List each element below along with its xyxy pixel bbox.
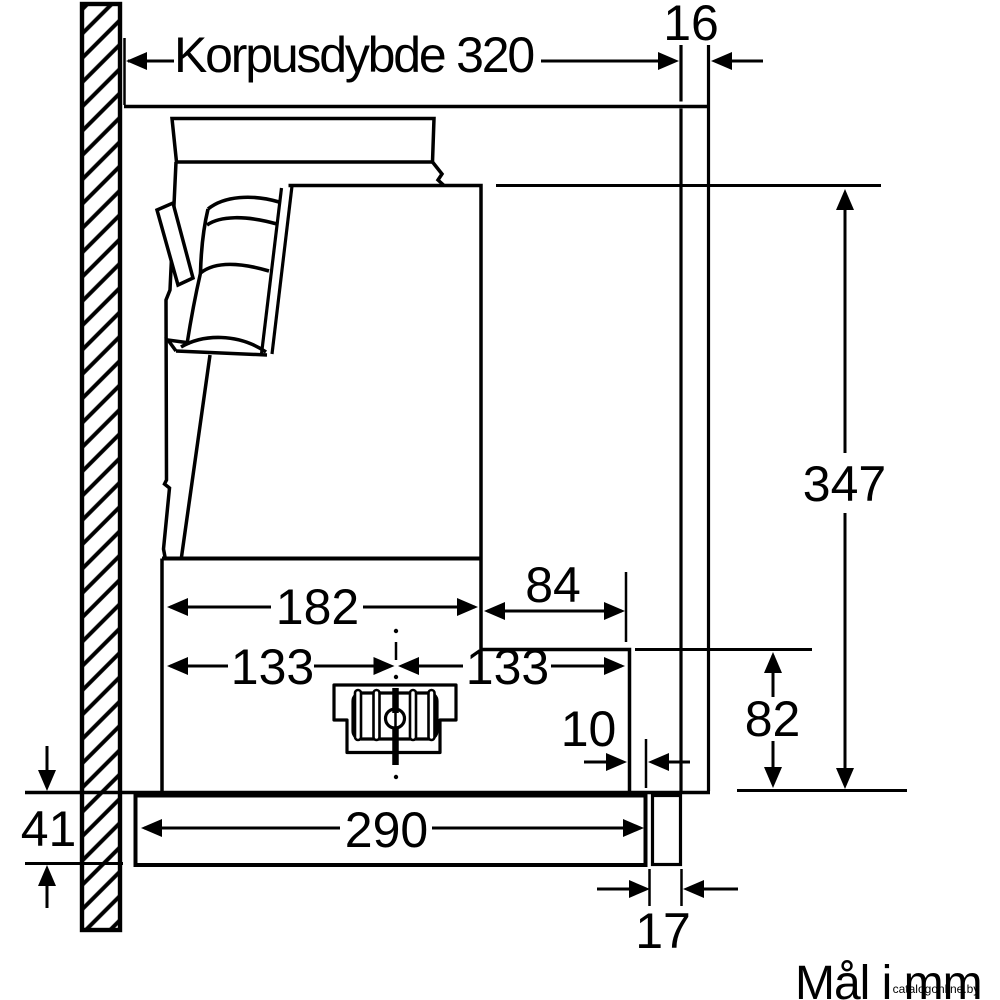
svg-text:84: 84 <box>525 557 581 613</box>
svg-text:347: 347 <box>803 456 886 512</box>
svg-text:182: 182 <box>276 579 359 635</box>
svg-text:10: 10 <box>561 701 617 757</box>
svg-text:82: 82 <box>745 691 801 747</box>
svg-text:133: 133 <box>231 639 314 695</box>
svg-text:16: 16 <box>663 0 719 51</box>
svg-text:290: 290 <box>345 802 428 858</box>
svg-text:41: 41 <box>21 801 77 857</box>
svg-text:catalogonline.by: catalogonline.by <box>893 982 980 996</box>
svg-text:133: 133 <box>466 639 549 695</box>
svg-text:17: 17 <box>635 903 691 959</box>
svg-text:Korpusdybde 320: Korpusdybde 320 <box>174 27 533 83</box>
